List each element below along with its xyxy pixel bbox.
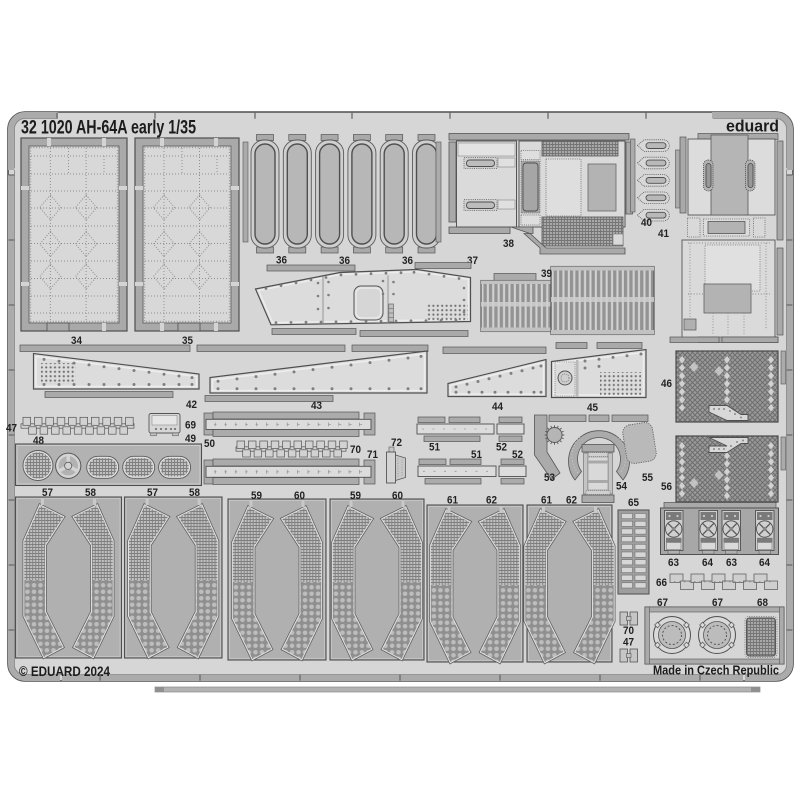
svg-text:59: 59 [251,490,262,502]
svg-text:68: 68 [757,597,768,609]
svg-text:53: 53 [544,472,555,484]
svg-text:63: 63 [726,557,737,569]
svg-text:44: 44 [492,401,504,413]
svg-text:36: 36 [402,255,413,267]
svg-text:72: 72 [391,437,402,449]
svg-text:56: 56 [661,481,672,493]
svg-text:70: 70 [623,625,634,637]
svg-text:42: 42 [186,399,197,411]
svg-text:Made in Czech Republic: Made in Czech Republic [653,663,779,678]
svg-text:41: 41 [658,228,669,240]
svg-text:32 1020 AH-64A early 1/35: 32 1020 AH-64A early 1/35 [21,117,196,139]
svg-text:71: 71 [367,449,378,461]
svg-text:eduard: eduard [726,118,779,136]
svg-text:59: 59 [350,490,361,502]
svg-text:63: 63 [668,557,679,569]
svg-text:50: 50 [204,438,215,450]
svg-text:39: 39 [541,268,552,280]
svg-text:55: 55 [642,472,653,484]
svg-text:45: 45 [587,402,598,414]
svg-text:46: 46 [661,378,672,390]
svg-text:49: 49 [185,433,196,445]
svg-text:65: 65 [628,497,639,509]
svg-text:47: 47 [623,637,634,649]
svg-text:62: 62 [566,495,577,507]
svg-text:67: 67 [657,597,668,609]
svg-text:60: 60 [294,490,305,502]
svg-text:60: 60 [392,490,403,502]
svg-text:62: 62 [486,495,497,507]
svg-text:38: 38 [503,238,514,250]
svg-text:51: 51 [471,449,482,461]
svg-text:69: 69 [185,420,196,432]
svg-text:66: 66 [656,577,667,589]
svg-text:64: 64 [759,557,771,569]
svg-text:54: 54 [616,481,628,493]
svg-text:61: 61 [541,495,552,507]
svg-text:51: 51 [429,442,440,454]
svg-text:52: 52 [512,449,523,461]
svg-text:40: 40 [641,217,652,229]
svg-text:47: 47 [6,423,17,435]
svg-text:© EDUARD 2024: © EDUARD 2024 [19,663,110,679]
svg-text:64: 64 [702,557,714,569]
svg-text:67: 67 [712,597,723,609]
svg-text:70: 70 [350,444,361,456]
svg-text:61: 61 [447,495,458,507]
svg-text:52: 52 [496,442,507,454]
